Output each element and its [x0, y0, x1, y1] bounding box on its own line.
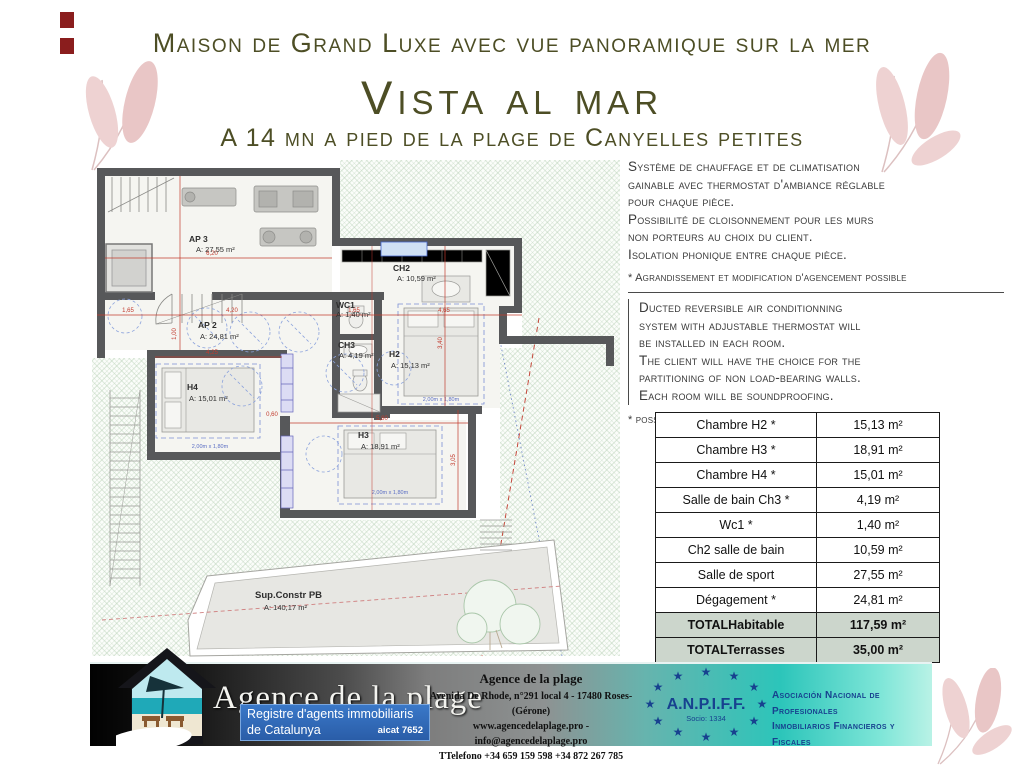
svg-text:H3: H3 [358, 430, 369, 440]
svg-text:CH2: CH2 [393, 263, 410, 273]
areas-table: Chambre H2 *15,13 m²Chambre H3 *18,91 m²… [655, 412, 940, 663]
svg-text:2,00m x 1,80m: 2,00m x 1,80m [192, 444, 229, 450]
text-line: be installed in each room. [639, 334, 1008, 352]
bed-h2: 2,00m x 1,80m [398, 304, 484, 404]
svg-text:2,00m x 1,80m: 2,00m x 1,80m [423, 397, 460, 403]
badge-code: aicat 7652 [378, 725, 423, 737]
table-row: Chambre H3 *18,91 m² [656, 438, 940, 463]
svg-text:A: 18,91 m²: A: 18,91 m² [361, 442, 400, 451]
svg-text:★: ★ [653, 714, 664, 728]
english-description: Ducted reversible air conditionningsyste… [639, 299, 1008, 404]
table-row: Chambre H2 *15,13 m² [656, 413, 940, 438]
info-column: Système de chauffage et de climatisation… [628, 158, 1008, 426]
svg-text:CH3: CH3 [338, 340, 355, 350]
svg-text:★: ★ [757, 697, 768, 711]
anpiff-name: A.N.P.I.F.F. [667, 696, 746, 713]
table-row: Wc1 *1,40 m² [656, 513, 940, 538]
svg-text:WC1: WC1 [336, 300, 355, 310]
agency-phone: TTelefono +34 659 159 598 +34 872 267 78… [424, 749, 638, 764]
anpiff-member: Socio: 1334 [686, 714, 726, 723]
text-line: Each room will be soundproofing. [639, 387, 1008, 405]
svg-text:★: ★ [653, 680, 664, 694]
svg-text:★: ★ [729, 725, 740, 739]
table-row: Salle de sport27,55 m² [656, 563, 940, 588]
svg-text:3,40: 3,40 [438, 337, 444, 349]
registry-badge: Registre d'agents immobiliaris de Catalu… [240, 704, 430, 741]
svg-text:0,60: 0,60 [266, 412, 278, 418]
anpiff-desc-line2: Inmobiliarios Financieros y Fiscales [772, 719, 932, 750]
elevator [106, 244, 152, 292]
svg-text:AP 2: AP 2 [198, 320, 217, 330]
svg-text:4,20: 4,20 [226, 308, 238, 314]
svg-text:4,25: 4,25 [206, 350, 218, 356]
svg-text:★: ★ [701, 730, 712, 744]
text-line: Système de chauffage et de climatisation [628, 158, 1008, 176]
agency-name: Agence de la plage [424, 671, 638, 687]
svg-text:A: 10,59 m²: A: 10,59 m² [397, 274, 436, 283]
svg-text:A: 15,13 m²: A: 15,13 m² [391, 361, 430, 370]
ac-unit-box [381, 242, 427, 256]
divider [628, 292, 1004, 293]
svg-text:★: ★ [701, 665, 712, 679]
svg-text:Sup.Constr PB: Sup.Constr PB [255, 590, 322, 601]
svg-text:A: 27,55 m²: A: 27,55 m² [196, 245, 235, 254]
table-row: Chambre H4 *15,01 m² [656, 463, 940, 488]
svg-text:5,80: 5,80 [376, 416, 388, 422]
text-line: system with adjustable thermostat will [639, 317, 1008, 335]
subheadline: A 14 mn a pied de la plage de Canyelles … [0, 124, 1024, 153]
agency-contact-block: Agence de la plage Avenida De Rhode, n°2… [424, 671, 638, 764]
text-line: Isolation phonique entre chaque pièce. [628, 246, 1008, 264]
french-description: Système de chauffage et de climatisation… [628, 158, 1008, 263]
svg-text:AP 3: AP 3 [189, 234, 208, 244]
svg-text:★: ★ [673, 725, 684, 739]
table-row: Ch2 salle de bain10,59 m² [656, 538, 940, 563]
table-total-row: TOTALTerrasses35,00 m² [656, 638, 940, 663]
anpiff-description: Asociación Nacional de Profesionales Inm… [772, 688, 932, 750]
property-title: Vista al mar [0, 70, 1024, 125]
svg-text:2,00m x 1,80m: 2,00m x 1,80m [372, 490, 409, 496]
svg-text:1,65: 1,65 [122, 308, 134, 314]
svg-text:A: 24,81 m²: A: 24,81 m² [200, 332, 239, 341]
text-line: The client will have the choice for the [639, 352, 1008, 370]
svg-text:★: ★ [645, 697, 656, 711]
text-line: Possibilité de cloisonnement pour les mu… [628, 211, 1008, 229]
anpiff-desc-line1: Asociación Nacional de Profesionales [772, 688, 932, 719]
svg-text:★: ★ [749, 714, 760, 728]
french-note: * Agrandissement et modification d'agenc… [628, 272, 1008, 284]
text-line: pour chaque pièce. [628, 193, 1008, 211]
anpiff-logo: ★★★ ★★★ ★★★ ★★★ A.N.P.I.F.F. Socio: 1334 [638, 664, 774, 744]
svg-text:A: 4,19 m²: A: 4,19 m² [339, 351, 374, 360]
agency-address: Avenida De Rhode, n°291 local 4 - 17480 … [424, 689, 638, 719]
text-line: non porteurs au choix du client. [628, 228, 1008, 246]
svg-text:★: ★ [729, 669, 740, 683]
bed-h3: 2,00m x 1,80m [338, 426, 442, 504]
table-total-row: TOTALHabitable117,59 m² [656, 613, 940, 638]
svg-text:A: 1,40 m²: A: 1,40 m² [336, 310, 371, 319]
svg-text:4,65: 4,65 [438, 308, 450, 314]
svg-text:★: ★ [749, 680, 760, 694]
svg-text:3,05: 3,05 [451, 454, 457, 466]
agency-house-logo [116, 646, 218, 748]
table-row: Salle de bain Ch3 *4,19 m² [656, 488, 940, 513]
agency-web-email: www.agencedelaplage.pro - info@agencedel… [424, 719, 638, 749]
flyer-page: Maison de Grand Luxe avec vue panoramiqu… [0, 0, 1024, 768]
floor-plan: 2,00m x 1,80m 2,00m x 1,80m 2,00m x 1,80… [92, 158, 622, 658]
text-line: gainable avec thermostat d'ambiance régl… [628, 176, 1008, 194]
svg-text:1,00: 1,00 [172, 328, 178, 340]
table-row: Dégagement *24,81 m² [656, 588, 940, 613]
badge-line1: Registre d'agents immobiliaris [247, 707, 423, 723]
svg-text:H4: H4 [187, 382, 198, 392]
red-square-decor [60, 12, 74, 28]
headline: Maison de Grand Luxe avec vue panoramiqu… [0, 28, 1024, 59]
text-line: partitioning of non load-bearing walls. [639, 369, 1008, 387]
svg-text:H2: H2 [389, 349, 400, 359]
svg-text:A: 15,01 m²: A: 15,01 m² [189, 394, 228, 403]
svg-text:★: ★ [673, 669, 684, 683]
text-line: Ducted reversible air conditionning [639, 299, 1008, 317]
svg-text:A: 140,17 m²: A: 140,17 m² [264, 603, 307, 612]
leaf-decor-bottom-right [930, 668, 1024, 768]
